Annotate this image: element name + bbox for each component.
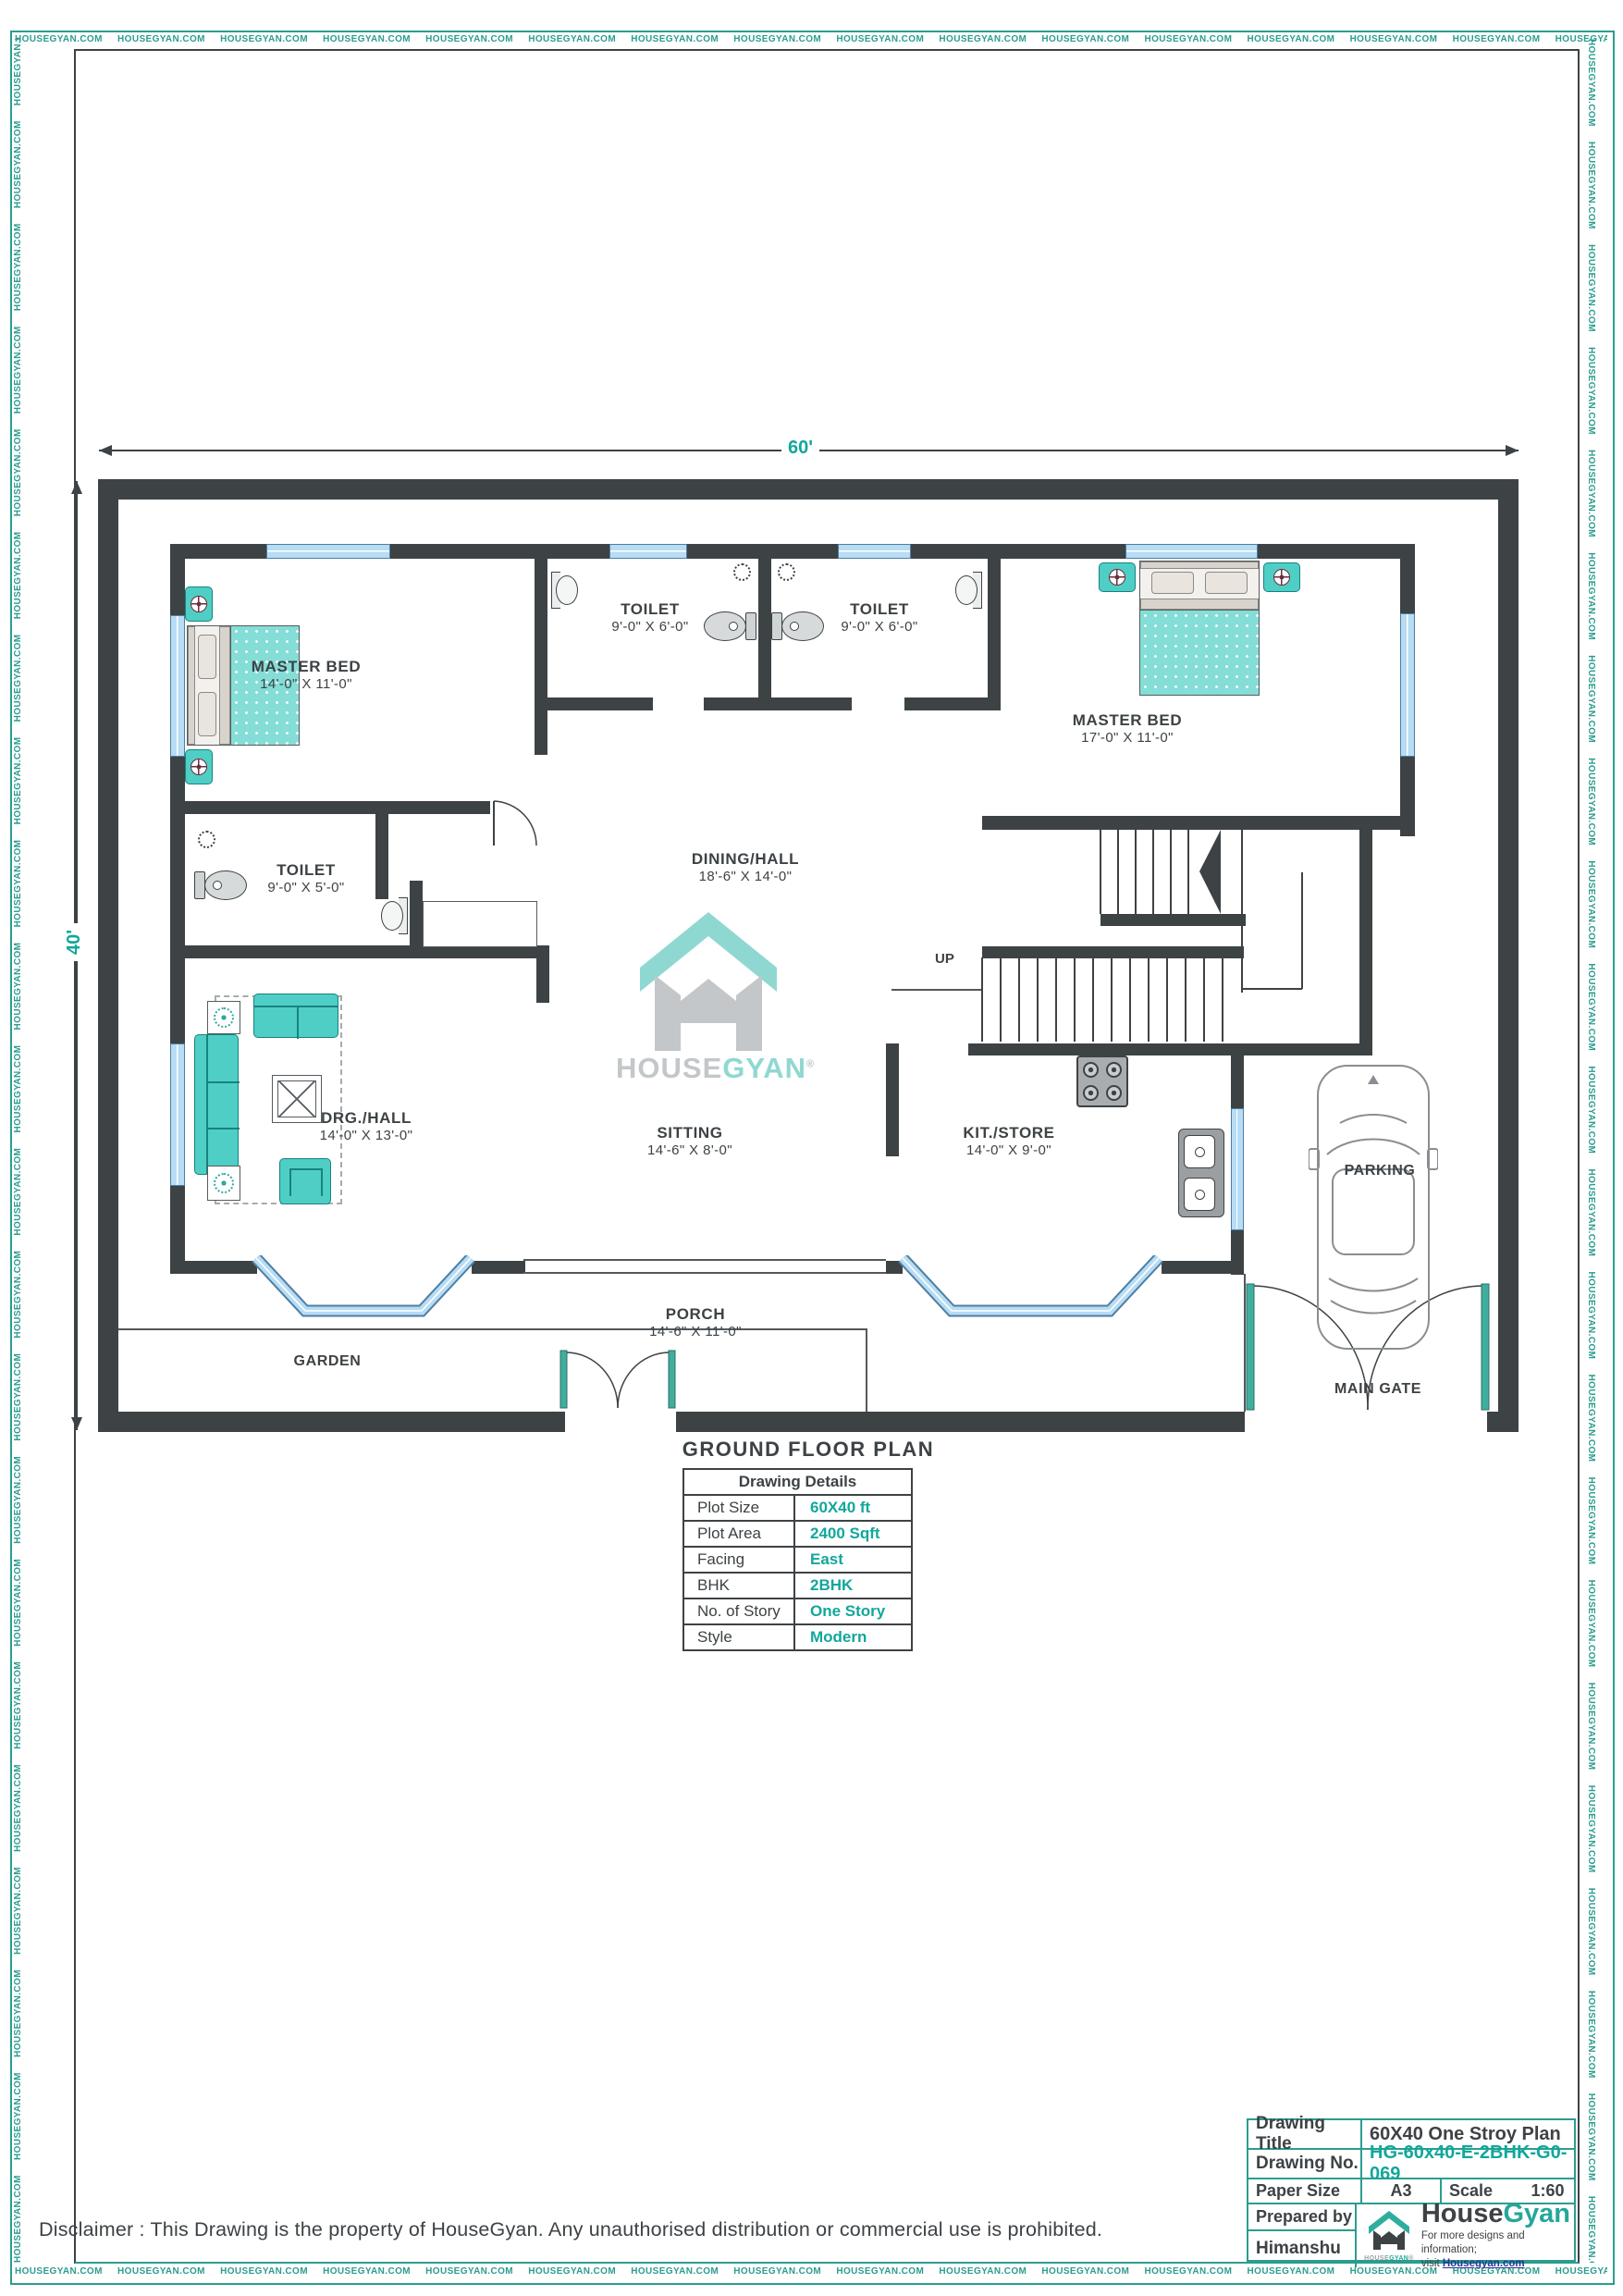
drawing-sheet: HOUSEGYAN.COM HOUSEGYAN.COM HOUSEGYAN.CO… <box>0 0 1623 2296</box>
details-table-title: Drawing Details <box>684 1470 911 1496</box>
exhaust-fan-icon <box>198 831 215 848</box>
window <box>1231 1108 1244 1230</box>
kitchen-sink-icon <box>1178 1129 1224 1217</box>
watermark-word-gyan: GYAN <box>722 1052 806 1084</box>
room-label-master-bed-1: MASTER BED14'-0" X 11'-0" <box>252 657 361 694</box>
exhaust-fan-icon <box>778 563 795 581</box>
wall <box>535 559 547 697</box>
floor-line <box>523 1259 886 1261</box>
logo-word-house: House <box>1421 2199 1504 2228</box>
wall <box>1487 1412 1518 1432</box>
floor-line <box>118 1328 867 1330</box>
sofa-icon <box>194 1034 239 1175</box>
room-label-master-bed-2: MASTER BED17'-0" X 11'-0" <box>1073 710 1182 747</box>
registered-mark: ® <box>806 1059 815 1070</box>
nightstand-icon <box>185 586 213 622</box>
title-block-row: Drawing No. HG-60x40-E-2BHK-G0-069 <box>1248 2150 1574 2179</box>
wall <box>886 1043 899 1156</box>
toilet-seat-icon <box>701 611 756 642</box>
room-label-drg-hall: DRG./HALL14'-0" X 13'-0" <box>320 1108 413 1145</box>
table-row: FacingEast <box>684 1548 911 1574</box>
watermark-strip-bottom: HOUSEGYAN.COM HOUSEGYAN.COM HOUSEGYAN.CO… <box>15 2266 1607 2278</box>
wall <box>704 697 852 710</box>
floor-line <box>523 1272 886 1274</box>
wall <box>535 710 547 755</box>
table-row: No. of StoryOne Story <box>684 1599 911 1625</box>
wall <box>98 1412 565 1432</box>
house-logo-icon <box>640 912 777 1051</box>
watermark-strip-left: HOUSEGYAN.COM HOUSEGYAN.COM HOUSEGYAN.CO… <box>13 39 26 2263</box>
window <box>838 544 911 559</box>
disclaimer-text: Disclaimer : This Drawing is the propert… <box>39 2218 1102 2241</box>
sofa-icon <box>253 994 338 1038</box>
area-label-parking: PARKING <box>1345 1162 1416 1180</box>
room-label-sitting: SITTING14'-6" X 8'-0" <box>647 1123 732 1160</box>
floor-line <box>866 1328 867 1412</box>
table-row: Plot Area2400 Sqft <box>684 1522 911 1548</box>
window <box>266 544 390 559</box>
nightstand-icon <box>1099 562 1136 592</box>
window <box>1125 544 1258 559</box>
table-row: StyleModern <box>684 1625 911 1649</box>
arrow-left-icon <box>99 445 112 456</box>
room-label-kit-store: KIT./STORE14'-0" X 9'-0" <box>963 1123 1054 1160</box>
porch-door <box>559 1347 677 1413</box>
arrow-right-icon <box>1506 445 1518 456</box>
center-table-icon <box>272 1075 322 1123</box>
toilet-seat-icon <box>194 870 250 901</box>
drawing-details-table: Drawing Details Plot Size60X40 ft Plot A… <box>682 1468 913 1651</box>
nightstand-icon <box>1263 562 1300 592</box>
staircase <box>968 816 1415 1055</box>
room-label-toilet-3: TOILET9'-0" X 5'-0" <box>267 860 344 897</box>
wall <box>98 479 118 1432</box>
area-label-main-gate: MAIN GATE <box>1334 1380 1421 1399</box>
prepared-by-value: Himanshu <box>1248 2231 1355 2265</box>
room-label-porch: PORCH14'-6" X 11'-0" <box>649 1304 742 1341</box>
lamp-icon <box>191 759 207 775</box>
room-label-toilet-2: TOILET9'-0" X 6'-0" <box>841 599 917 636</box>
arrow-down-icon <box>71 1417 82 1430</box>
window <box>170 615 185 757</box>
room-label-toilet-1: TOILET9'-0" X 6'-0" <box>611 599 688 636</box>
lamp-icon <box>191 596 207 612</box>
gas-stove-icon <box>1076 1055 1128 1107</box>
wall <box>904 697 1001 710</box>
window <box>170 1043 185 1186</box>
dimension-left-label: 40' <box>63 923 86 961</box>
wall <box>185 801 490 814</box>
wall <box>1498 479 1518 1432</box>
lamp-icon <box>1273 569 1290 586</box>
floor-plan: UP <box>98 479 1518 1432</box>
housegyan-logo-block: HOUSEGYAN® HouseGyan For more designs an… <box>1357 2204 1574 2267</box>
area-label-garden: GARDEN <box>294 1352 362 1371</box>
wall <box>536 945 549 1003</box>
table-row: BHK2BHK <box>684 1574 911 1599</box>
nightstand-icon <box>185 749 213 784</box>
wall <box>535 697 653 710</box>
watermark-strip-top: HOUSEGYAN.COM HOUSEGYAN.COM HOUSEGYAN.CO… <box>15 34 1607 46</box>
arrow-up-icon <box>71 481 82 494</box>
logo-word-gyan: Gyan <box>1503 2199 1570 2228</box>
plan-title: GROUND FLOOR PLAN <box>98 1438 1518 1462</box>
scale-label: Scale <box>1442 2181 1521 2201</box>
wall <box>1231 1046 1244 1111</box>
exhaust-fan-icon <box>733 563 751 581</box>
wall <box>988 559 1001 697</box>
car-icon <box>1309 1056 1438 1358</box>
toilet-seat-icon <box>771 611 827 642</box>
washbasin-icon <box>378 897 408 934</box>
bed-icon <box>1139 561 1260 696</box>
watermark-word-house: HOUSE <box>616 1052 722 1084</box>
room-label-dining-hall: DINING/HALL18'-6" X 14'-0" <box>692 849 799 886</box>
stairs-up-label: UP <box>935 951 954 967</box>
dimension-top-label: 60' <box>781 437 819 460</box>
housegyan-link[interactable]: Housegyan.com <box>1443 2258 1525 2269</box>
corner-table-icon <box>207 1001 240 1034</box>
wall <box>185 945 536 958</box>
wall <box>1162 1261 1244 1274</box>
wall <box>758 559 771 697</box>
door-arc <box>490 797 540 851</box>
counter <box>423 901 537 947</box>
wall <box>375 814 388 899</box>
title-block: Drawing Title 60X40 One Stroy Plan Drawi… <box>1247 2118 1576 2262</box>
housegyan-watermark-logo: HOUSEGYAN® <box>616 912 801 1082</box>
washbasin-icon <box>953 572 982 609</box>
watermark-strip-right: HOUSEGYAN.COM HOUSEGYAN.COM HOUSEGYAN.CO… <box>1583 39 1596 2263</box>
armchair-icon <box>279 1158 331 1204</box>
window <box>1400 613 1415 757</box>
logo-tagline: For more designs and information; visit … <box>1421 2229 1570 2271</box>
wall <box>98 479 1518 500</box>
table-row: Plot Size60X40 ft <box>684 1496 911 1522</box>
lamp-icon <box>1109 569 1125 586</box>
window <box>609 544 687 559</box>
house-logo-icon <box>1369 2211 1409 2250</box>
bay-window <box>890 1255 1171 1322</box>
prepared-by-cell: Prepared by Himanshu <box>1248 2204 1357 2267</box>
washbasin-icon <box>551 572 581 609</box>
scale-value: 1:60 <box>1521 2181 1574 2201</box>
wall <box>410 881 423 947</box>
wall <box>676 1412 1245 1432</box>
bay-window <box>244 1255 483 1322</box>
corner-table-icon <box>207 1166 240 1201</box>
